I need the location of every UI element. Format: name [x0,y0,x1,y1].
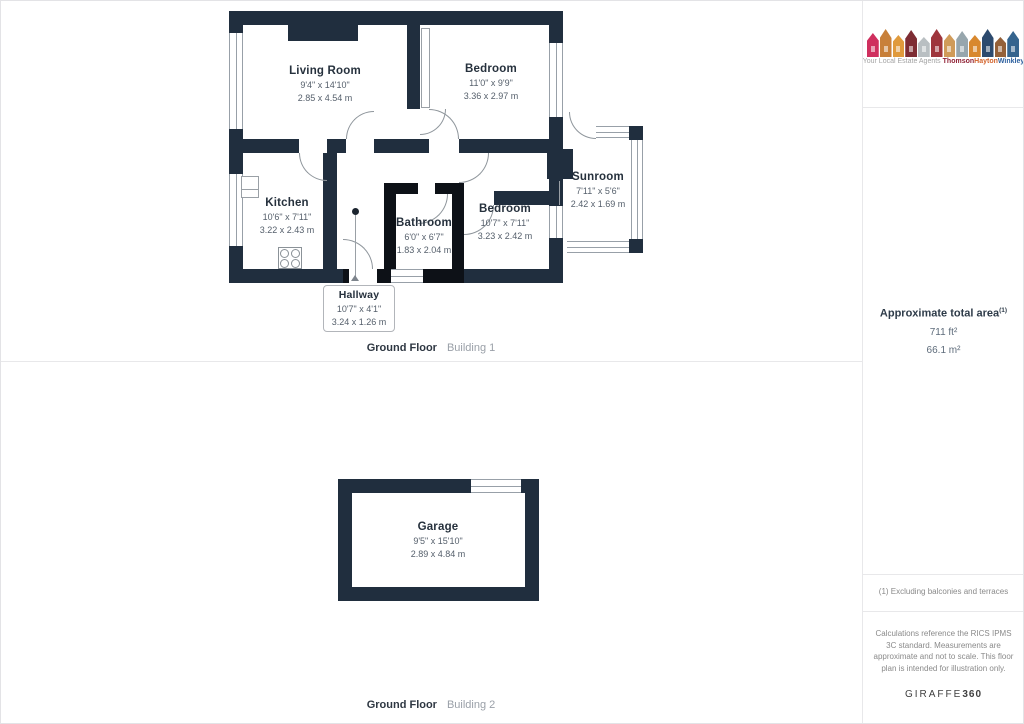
wall-segment [374,139,429,153]
building-name: Building 1 [447,342,495,354]
hallway-pointer-dot [352,208,359,215]
room-dims-metric: 1.83 x 2.04 m [396,244,452,257]
room-dims-imperial: 11'0" x 9'9" [464,77,519,90]
building-name: Building 2 [447,699,495,711]
wall-segment [423,269,459,283]
window [391,269,423,283]
house-icon [944,34,956,57]
room-name: Living Room [289,65,361,77]
hallway-pointer-arrow-icon [351,275,359,281]
sidebar-divider [862,1,863,724]
house-icon [995,37,1007,57]
room-label-hallway: Hallway 10'7" x 4'1" 3.24 x 1.26 m [323,285,395,332]
hob-icon [278,247,302,269]
room-dims-imperial: 6'0" x 6'7" [396,231,452,244]
wall-segment [229,11,563,25]
room-dims-metric: 2.42 x 1.69 m [571,198,626,211]
window-sill [241,176,259,198]
room-label-living-room: Living Room 9'4" x 14'10" 2.85 x 4.54 m [289,65,361,104]
window [549,206,563,238]
hallway-leader-line [355,215,356,279]
sidebar-section-divider [863,107,1024,108]
house-icon [931,29,943,57]
flue-line [559,181,560,205]
room-dims-metric: 3.36 x 2.97 m [464,90,519,103]
room-name: Bedroom [464,63,519,75]
room-name: Bathroom [396,217,452,229]
provider-suffix: 360 [962,689,982,700]
floor-caption-building-2: Ground FloorBuilding 2 [231,699,631,711]
door-frame [377,269,385,283]
total-area-footnote-marker: (1) [999,307,1007,314]
total-area-label: Approximate total area(1) [862,307,1024,320]
house-icon [982,29,994,57]
brand-word-hayton: Hayton [974,58,998,65]
estate-agent-logo-houses-icon [867,27,1019,57]
room-dims-metric: 3.24 x 1.26 m [325,316,393,329]
wall-segment [525,479,539,601]
room-dims-imperial: 9'5" x 15'10" [411,535,466,548]
chimney-breast [547,149,573,179]
room-dims-imperial: 7'11" x 5'6" [571,185,626,198]
house-icon [918,37,930,57]
room-dims-metric: 3.23 x 2.42 m [478,230,533,243]
wall-segment [407,11,420,109]
sunroom-glazed-wall [631,140,643,241]
room-name: Bedroom [478,203,533,215]
room-name: Hallway [325,289,393,301]
room-dims-imperial: 10'6" x 7'11" [260,211,315,224]
house-icon [905,30,917,57]
floorplan-page: Living Room 9'4" x 14'10" 2.85 x 4.54 m … [0,0,1024,724]
provider-name: GIRAFFE [905,689,962,700]
disclaimer-text: Calculations reference the RICS IPMS 3C … [872,628,1015,674]
wall-segment [384,183,418,194]
house-icon [893,35,905,57]
window [549,43,563,117]
room-name: Kitchen [260,197,315,209]
total-area-block: Approximate total area(1) 711 ft² 66.1 m… [862,307,1024,356]
door-arc [459,153,489,183]
window [229,33,243,129]
sunroom-glazed-wall [567,241,629,253]
room-label-garage: Garage 9'5" x 15'10" 2.89 x 4.84 m [411,521,466,560]
brand-word-thomson: Thomson [943,58,975,65]
room-dims-metric: 2.89 x 4.84 m [411,548,466,561]
wall-segment [459,139,563,153]
door-arc [343,239,373,269]
door-arc [429,109,459,139]
tagline-text: Your Local Estate Agents [863,58,941,65]
house-icon [956,31,968,57]
total-area-ft: 711 ft² [862,327,1024,338]
footnote-balconies: (1) Excluding balconies and terraces [864,587,1023,596]
room-dims-imperial: 9'4" x 14'10" [289,79,361,92]
room-name: Sunroom [571,171,626,183]
house-icon [867,33,879,57]
room-dims-metric: 2.85 x 4.54 m [289,92,361,105]
total-area-m: 66.1 m² [862,345,1024,356]
plan-section-divider [1,361,862,362]
house-icon [1007,31,1019,57]
room-name: Garage [411,521,466,533]
wall-segment [327,139,346,153]
wall-segment [435,183,464,194]
brand-word-winkley: Winkley [998,58,1024,65]
provider-logo: GIRAFFE360 [862,689,1024,700]
door-arc [569,112,596,139]
wall-segment [629,126,643,140]
room-label-bathroom: Bathroom 6'0" x 6'7" 1.83 x 2.04 m [396,217,452,256]
house-icon [969,35,981,57]
wall-segment [629,239,643,253]
room-label-bedroom-2: Bedroom 10'7" x 7'11" 3.23 x 2.42 m [478,203,533,242]
wall-segment [338,479,352,601]
room-label-sunroom: Sunroom 7'11" x 5'6" 2.42 x 1.69 m [571,171,626,210]
room-label-bedroom-1: Bedroom 11'0" x 9'9" 3.36 x 2.97 m [464,63,519,102]
room-dims-imperial: 10'7" x 4'1" [325,303,393,316]
sunroom-glazed-wall [596,126,629,138]
wall-segment [229,139,299,153]
sidebar-section-divider [863,611,1024,612]
wall-segment [338,587,539,601]
floor-name: Ground Floor [367,699,437,711]
floor-name: Ground Floor [367,342,437,354]
door-arc [299,153,327,181]
room-dims-metric: 3.22 x 2.43 m [260,224,315,237]
window [471,479,521,493]
door-arc [346,111,374,139]
room-dims-imperial: 10'7" x 7'11" [478,217,533,230]
chimney-breast [288,25,358,41]
estate-agent-tagline: Your Local Estate Agents ThomsonHaytonWi… [862,58,1024,65]
sidebar-section-divider [863,574,1024,575]
room-label-kitchen: Kitchen 10'6" x 7'11" 3.22 x 2.43 m [260,197,315,236]
floor-caption-building-1: Ground FloorBuilding 1 [231,342,631,354]
house-icon [880,29,892,57]
door-leaf [421,28,430,108]
total-area-label-text: Approximate total area [880,308,999,320]
